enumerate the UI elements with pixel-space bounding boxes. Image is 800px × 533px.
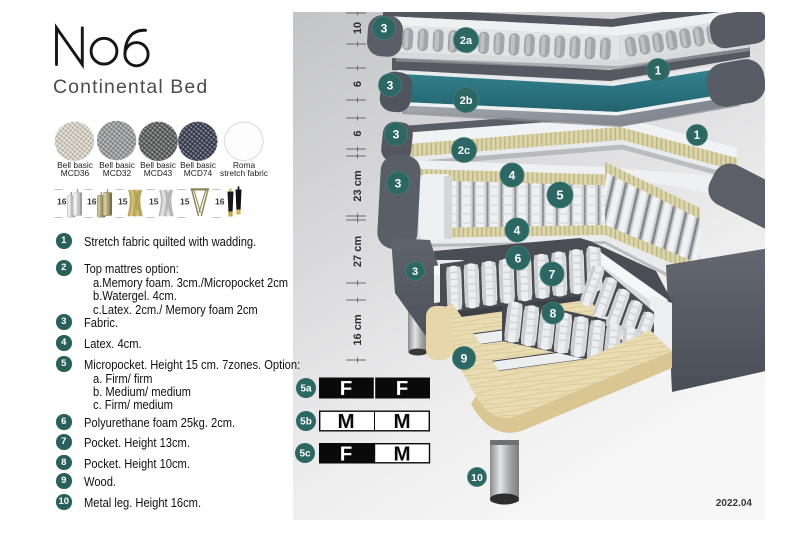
svg-text:7: 7	[549, 267, 556, 281]
svg-text:2022.04: 2022.04	[716, 498, 753, 509]
svg-text:5c: 5c	[299, 449, 311, 460]
svg-text:27 cm: 27 cm	[352, 236, 364, 267]
svg-text:4: 4	[514, 223, 521, 237]
svg-text:1: 1	[655, 63, 662, 77]
svg-text:3: 3	[387, 78, 394, 92]
svg-text:M: M	[393, 443, 410, 466]
svg-text:10: 10	[352, 22, 364, 34]
svg-text:10: 10	[471, 472, 483, 484]
svg-text:3: 3	[395, 176, 402, 190]
svg-text:6: 6	[515, 251, 522, 265]
svg-text:3: 3	[381, 21, 388, 35]
svg-text:2c: 2c	[458, 145, 470, 157]
svg-text:1: 1	[694, 130, 701, 142]
svg-text:6: 6	[352, 130, 364, 136]
svg-text:23 cm: 23 cm	[352, 170, 364, 201]
svg-text:5a: 5a	[300, 384, 312, 395]
svg-text:F: F	[396, 377, 409, 400]
svg-text:3: 3	[412, 266, 418, 278]
svg-text:2a: 2a	[460, 35, 473, 47]
svg-text:5: 5	[556, 188, 563, 203]
svg-text:F: F	[340, 443, 353, 466]
svg-text:3: 3	[393, 127, 400, 141]
svg-text:9: 9	[461, 351, 468, 365]
svg-text:M: M	[393, 410, 410, 433]
svg-text:16 cm: 16 cm	[352, 314, 364, 345]
svg-text:F: F	[340, 377, 353, 400]
svg-text:6: 6	[352, 81, 364, 87]
svg-text:4: 4	[509, 168, 516, 182]
svg-text:8: 8	[550, 306, 557, 320]
svg-text:M: M	[337, 410, 354, 433]
svg-text:5b: 5b	[300, 417, 312, 428]
svg-text:2b: 2b	[460, 95, 473, 107]
